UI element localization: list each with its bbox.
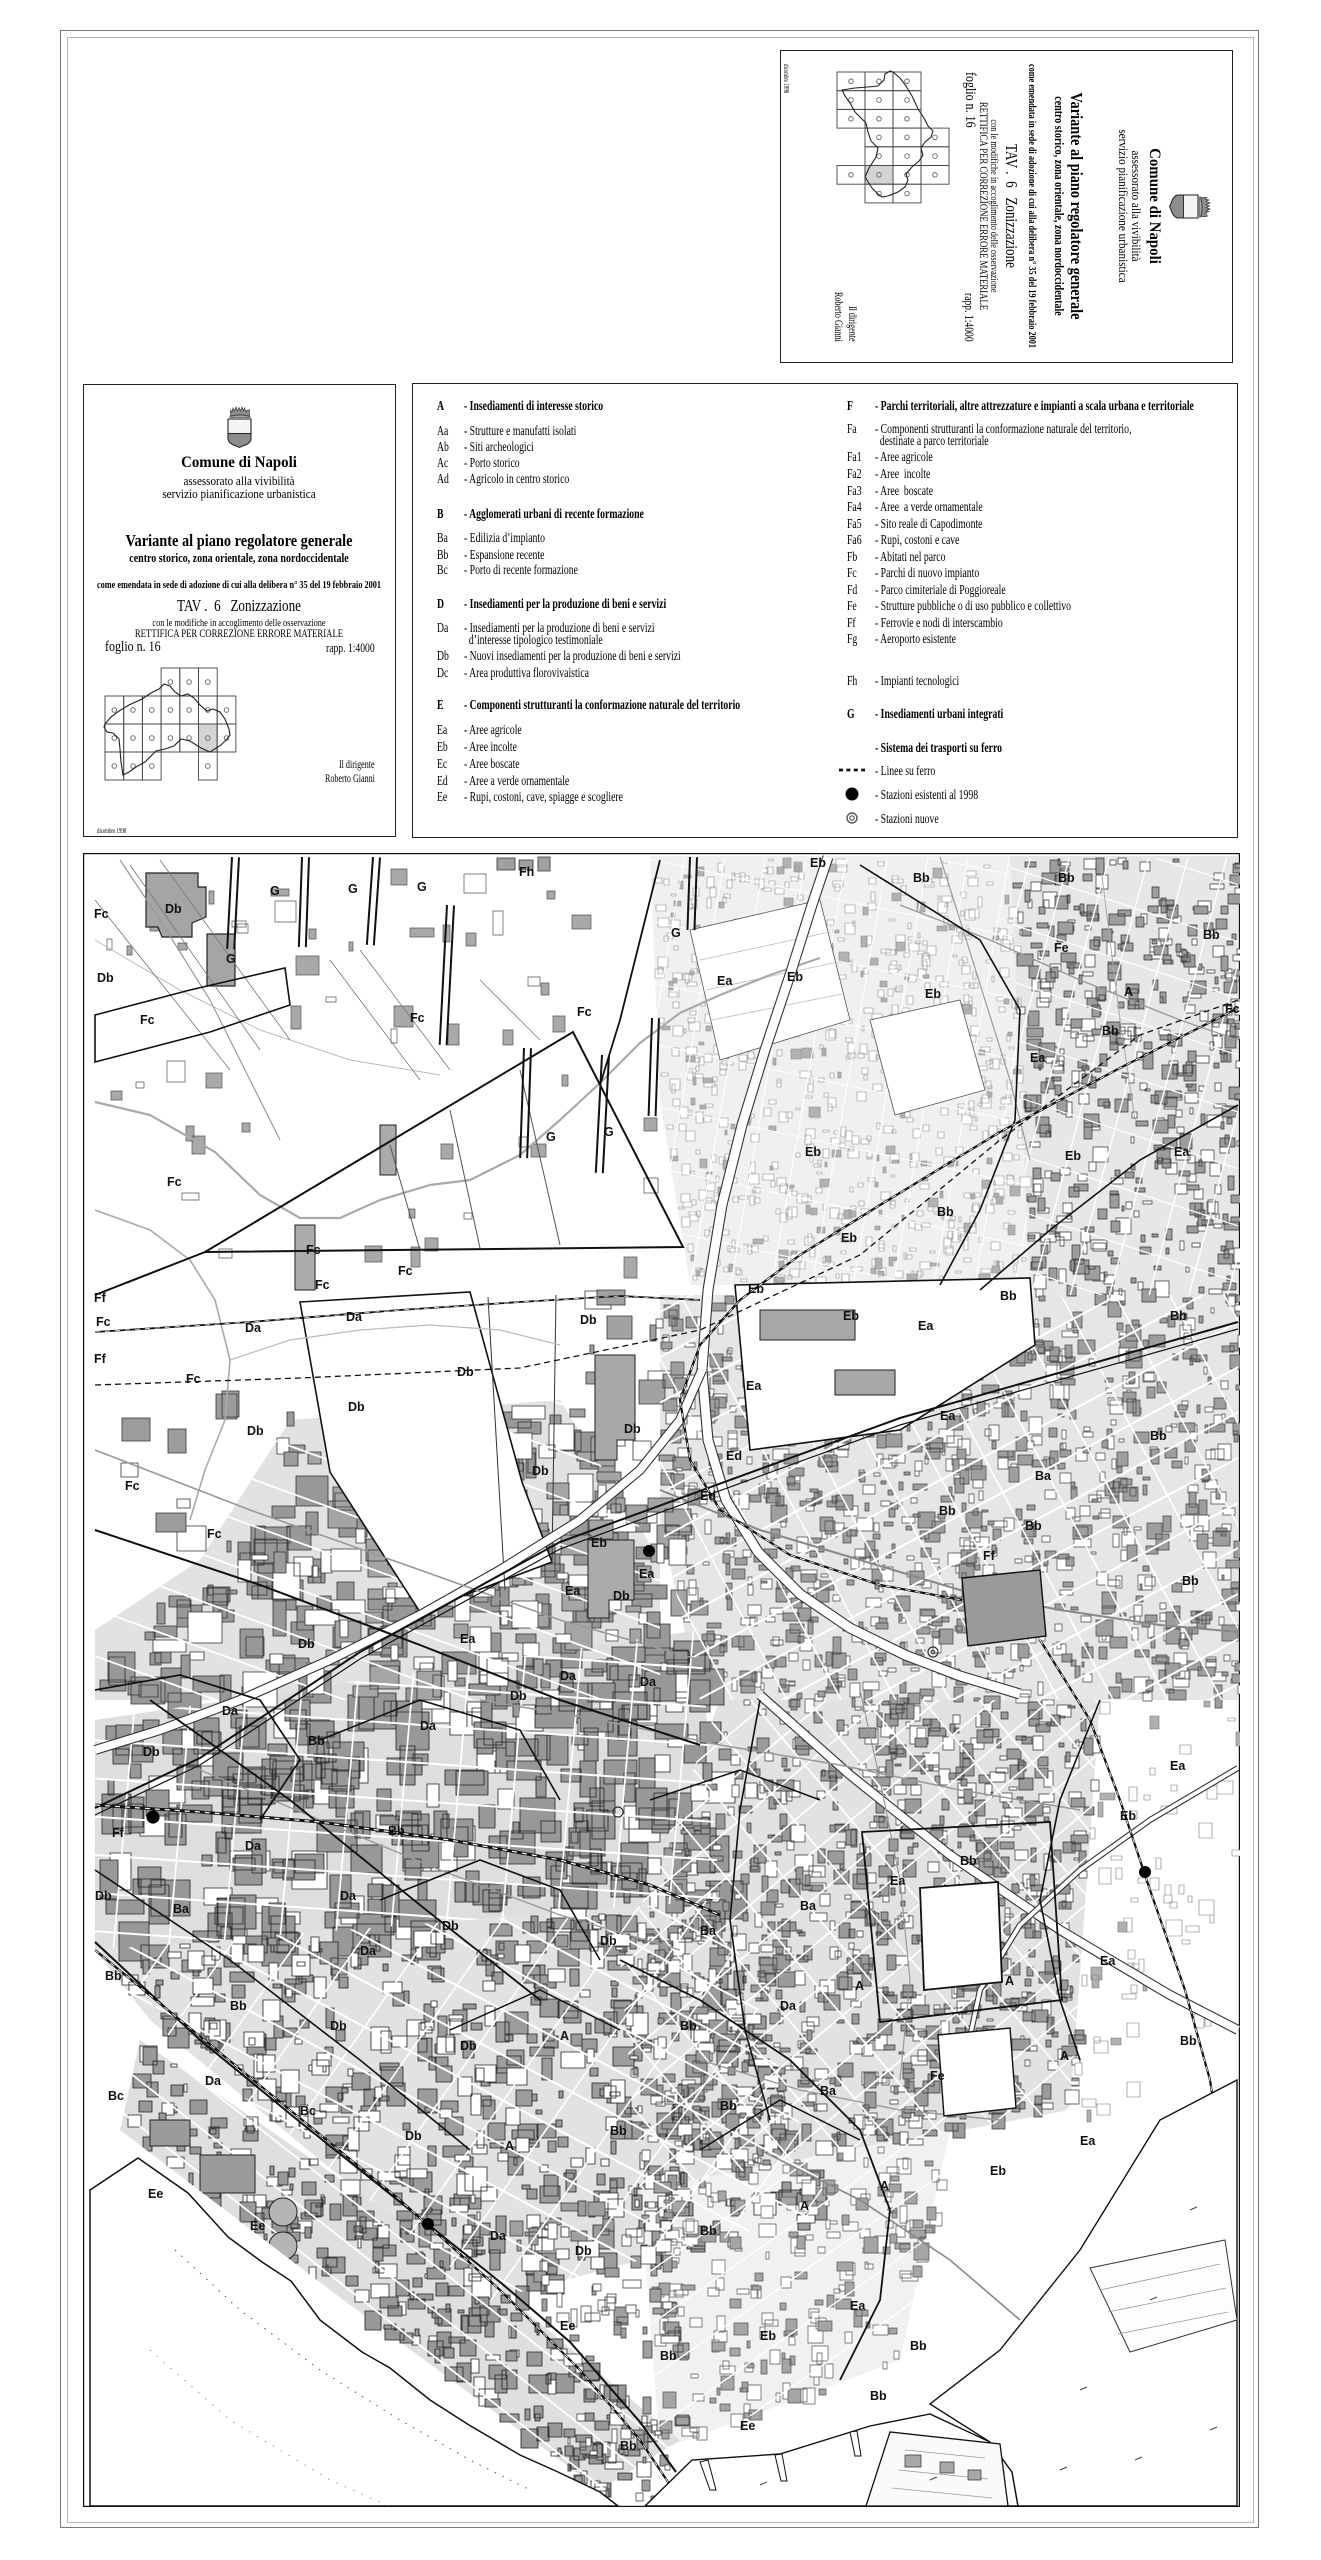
svg-text:Ea: Ea bbox=[639, 1567, 655, 1581]
svg-text:Eb: Eb bbox=[1120, 1809, 1136, 1823]
svg-text:Bb: Bb bbox=[620, 2439, 637, 2453]
svg-text:Db: Db bbox=[600, 1934, 617, 1948]
svg-text:Ff: Ff bbox=[94, 1291, 107, 1305]
svg-text:Bb: Bb bbox=[870, 2389, 887, 2403]
svg-text:Fc: Fc bbox=[1225, 1002, 1240, 1016]
svg-text:Da: Da bbox=[205, 2074, 222, 2088]
svg-text:Ea: Ea bbox=[918, 1319, 934, 1333]
svg-text:Ea: Ea bbox=[746, 1379, 762, 1393]
svg-text:A: A bbox=[855, 1979, 864, 1993]
svg-text:Ea: Ea bbox=[1080, 2134, 1096, 2148]
svg-text:Bb: Bb bbox=[388, 1824, 405, 1838]
svg-text:Bb: Bb bbox=[1203, 928, 1220, 942]
svg-text:Eb: Eb bbox=[990, 2164, 1006, 2178]
svg-text:Fc: Fc bbox=[306, 1243, 321, 1257]
svg-text:Bb: Bb bbox=[680, 2019, 697, 2033]
svg-text:Ff: Ff bbox=[983, 1549, 996, 1563]
svg-text:Eb: Eb bbox=[591, 1536, 607, 1550]
svg-text:Db: Db bbox=[532, 1464, 549, 1478]
svg-text:G: G bbox=[348, 882, 358, 896]
svg-text:Fe: Fe bbox=[930, 2069, 945, 2083]
svg-text:Fc: Fc bbox=[410, 1011, 425, 1025]
svg-text:Da: Da bbox=[346, 1310, 363, 1324]
svg-text:Ea: Ea bbox=[1174, 1145, 1190, 1159]
svg-text:Ee: Ee bbox=[740, 2419, 755, 2433]
svg-text:G: G bbox=[417, 880, 427, 894]
svg-text:G: G bbox=[671, 926, 681, 940]
svg-text:Bb: Bb bbox=[660, 2349, 677, 2363]
svg-text:A: A bbox=[1124, 985, 1133, 999]
svg-text:A: A bbox=[800, 2199, 809, 2213]
svg-text:Ea: Ea bbox=[850, 2299, 866, 2313]
svg-text:Da: Da bbox=[490, 2229, 507, 2243]
svg-text:Da: Da bbox=[222, 1704, 239, 1718]
svg-text:Db: Db bbox=[97, 971, 114, 985]
svg-text:A: A bbox=[560, 2029, 569, 2043]
svg-text:Ea: Ea bbox=[1100, 1954, 1116, 1968]
svg-text:A: A bbox=[1005, 1974, 1014, 1988]
svg-text:Eb: Eb bbox=[760, 2329, 776, 2343]
svg-text:Ff: Ff bbox=[94, 1352, 107, 1366]
svg-text:Bb: Bb bbox=[230, 1999, 247, 2013]
svg-text:Eb: Eb bbox=[748, 1282, 764, 1296]
svg-text:Ba: Ba bbox=[700, 1924, 717, 1938]
svg-text:Ea: Ea bbox=[565, 1584, 581, 1598]
svg-text:Bb: Bb bbox=[913, 871, 930, 885]
svg-text:Fc: Fc bbox=[167, 1175, 182, 1189]
svg-text:Ee: Ee bbox=[250, 2219, 265, 2233]
svg-text:Ea: Ea bbox=[717, 974, 733, 988]
svg-text:Bb: Bb bbox=[1000, 1289, 1017, 1303]
svg-text:Da: Da bbox=[360, 1944, 377, 1958]
svg-text:Da: Da bbox=[245, 1321, 262, 1335]
svg-text:Ea: Ea bbox=[940, 1409, 956, 1423]
svg-text:Db: Db bbox=[580, 1313, 597, 1327]
svg-text:Db: Db bbox=[95, 1889, 112, 1903]
svg-text:Db: Db bbox=[330, 2019, 347, 2033]
svg-text:Ba: Ba bbox=[1035, 1469, 1052, 1483]
svg-text:Ba: Ba bbox=[173, 1902, 190, 1916]
svg-text:Db: Db bbox=[510, 1689, 527, 1703]
svg-text:Bb: Bb bbox=[1025, 1519, 1042, 1533]
svg-text:Ea: Ea bbox=[1170, 1759, 1186, 1773]
svg-text:Eb: Eb bbox=[810, 856, 826, 870]
svg-text:Bb: Bb bbox=[1170, 1309, 1187, 1323]
svg-text:Ed: Ed bbox=[700, 1489, 716, 1503]
svg-text:A: A bbox=[505, 2139, 514, 2153]
svg-text:Ea: Ea bbox=[890, 1874, 906, 1888]
svg-text:Db: Db bbox=[575, 2244, 592, 2258]
svg-text:Bb: Bb bbox=[1150, 1429, 1167, 1443]
svg-text:A: A bbox=[1060, 2049, 1069, 2063]
svg-text:Db: Db bbox=[460, 2039, 477, 2053]
svg-text:Da: Da bbox=[420, 1719, 437, 1733]
svg-text:Db: Db bbox=[442, 1919, 459, 1933]
svg-text:Db: Db bbox=[298, 1637, 315, 1651]
svg-text:Ee: Ee bbox=[560, 2319, 575, 2333]
svg-text:Eb: Eb bbox=[805, 1145, 821, 1159]
svg-text:Bb: Bb bbox=[960, 1854, 977, 1868]
svg-text:Bc: Bc bbox=[300, 2104, 316, 2118]
svg-text:G: G bbox=[604, 1125, 614, 1139]
svg-text:Bb: Bb bbox=[308, 1734, 325, 1748]
svg-text:Ee: Ee bbox=[148, 2187, 163, 2201]
svg-text:Ff: Ff bbox=[112, 1826, 125, 1840]
svg-text:Da: Da bbox=[560, 1669, 577, 1683]
svg-text:Fc: Fc bbox=[186, 1372, 201, 1386]
svg-text:Ea: Ea bbox=[1030, 1051, 1046, 1065]
svg-text:Bb: Bb bbox=[700, 2224, 717, 2238]
svg-text:Bb: Bb bbox=[1180, 2034, 1197, 2048]
svg-text:Bb: Bb bbox=[937, 1205, 954, 1219]
svg-text:Fc: Fc bbox=[577, 1005, 592, 1019]
svg-text:Ba: Ba bbox=[820, 2084, 837, 2098]
svg-text:Db: Db bbox=[457, 1365, 474, 1379]
svg-text:Eb: Eb bbox=[925, 987, 941, 1001]
svg-text:G: G bbox=[546, 1130, 556, 1144]
svg-text:Ea: Ea bbox=[460, 1632, 476, 1646]
svg-text:Db: Db bbox=[247, 1424, 264, 1438]
svg-text:G: G bbox=[226, 952, 236, 966]
svg-text:Fe: Fe bbox=[1054, 941, 1069, 955]
svg-text:Fc: Fc bbox=[398, 1264, 413, 1278]
svg-text:Da: Da bbox=[640, 1675, 657, 1689]
svg-text:Fc: Fc bbox=[140, 1013, 155, 1027]
svg-text:Db: Db bbox=[348, 1400, 365, 1414]
svg-text:Db: Db bbox=[405, 2129, 422, 2143]
svg-text:Bb: Bb bbox=[610, 2124, 627, 2138]
svg-text:Fc: Fc bbox=[125, 1479, 140, 1493]
svg-text:G: G bbox=[270, 884, 280, 898]
svg-text:Bb: Bb bbox=[1102, 1024, 1119, 1038]
svg-text:Ba: Ba bbox=[800, 1899, 817, 1913]
svg-text:Ed: Ed bbox=[726, 1449, 742, 1463]
svg-text:Bb: Bb bbox=[720, 2099, 737, 2113]
svg-text:Fh: Fh bbox=[519, 865, 534, 879]
svg-text:Da: Da bbox=[340, 1889, 357, 1903]
svg-text:Bb: Bb bbox=[105, 1969, 122, 1983]
svg-text:Bb: Bb bbox=[1182, 1574, 1199, 1588]
svg-text:Fc: Fc bbox=[315, 1278, 330, 1292]
svg-text:Da: Da bbox=[245, 1839, 262, 1853]
svg-text:Db: Db bbox=[165, 902, 182, 916]
svg-text:Bb: Bb bbox=[1058, 871, 1075, 885]
svg-text:Fc: Fc bbox=[207, 1527, 222, 1541]
svg-text:Bb: Bb bbox=[939, 1504, 956, 1518]
svg-text:Eb: Eb bbox=[787, 970, 803, 984]
svg-text:Fc: Fc bbox=[96, 1315, 111, 1329]
svg-text:A: A bbox=[880, 2179, 889, 2193]
svg-text:Fc: Fc bbox=[94, 907, 109, 921]
svg-text:Eb: Eb bbox=[843, 1309, 859, 1323]
svg-text:Db: Db bbox=[624, 1422, 641, 1436]
svg-text:Bc: Bc bbox=[108, 2089, 124, 2103]
svg-text:Eb: Eb bbox=[1065, 1149, 1081, 1163]
svg-text:Bb: Bb bbox=[910, 2339, 927, 2353]
svg-text:Eb: Eb bbox=[841, 1231, 857, 1245]
svg-text:Db: Db bbox=[143, 1745, 160, 1759]
svg-text:Db: Db bbox=[613, 1589, 630, 1603]
svg-text:Da: Da bbox=[780, 1999, 797, 2013]
